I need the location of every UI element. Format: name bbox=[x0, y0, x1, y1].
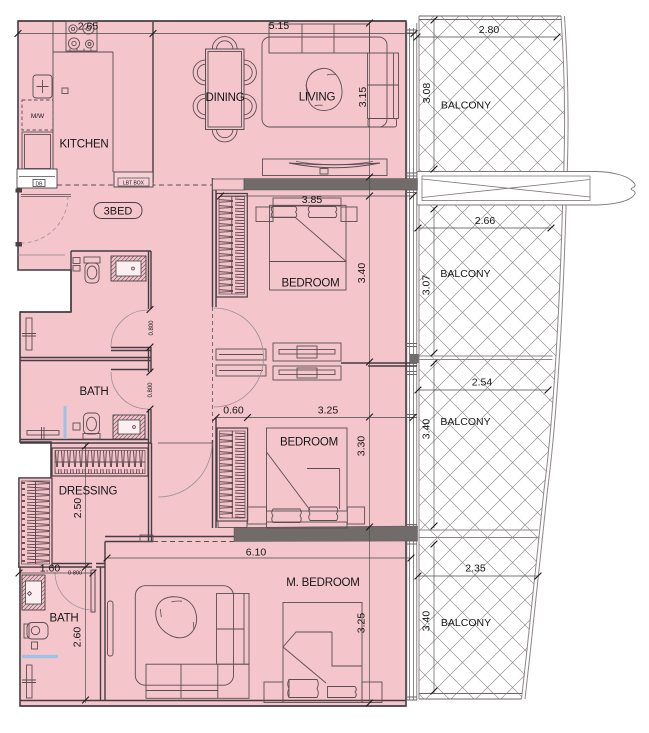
svg-text:2.35: 2.35 bbox=[465, 563, 486, 575]
svg-text:3.25: 3.25 bbox=[318, 405, 339, 417]
svg-text:3.85: 3.85 bbox=[302, 194, 323, 206]
svg-text:3.25: 3.25 bbox=[356, 613, 368, 634]
svg-text:BALCONY: BALCONY bbox=[441, 100, 491, 112]
svg-text:2.54: 2.54 bbox=[472, 377, 493, 389]
svg-text:2.65: 2.65 bbox=[78, 21, 99, 33]
svg-text:0·800: 0·800 bbox=[68, 571, 82, 577]
svg-text:3.08: 3.08 bbox=[421, 83, 433, 104]
svg-text:2.60: 2.60 bbox=[72, 627, 84, 648]
svg-text:LIVING: LIVING bbox=[299, 92, 336, 104]
svg-text:BATH: BATH bbox=[49, 613, 78, 625]
svg-text:KITCHEN: KITCHEN bbox=[59, 139, 108, 151]
svg-text:M/W: M/W bbox=[31, 113, 45, 120]
svg-text:3.07: 3.07 bbox=[421, 275, 433, 296]
svg-text:BEDROOM: BEDROOM bbox=[280, 437, 338, 449]
svg-text:DB: DB bbox=[36, 182, 44, 188]
svg-text:0.800: 0.800 bbox=[148, 382, 154, 398]
svg-text:LBT BOX: LBT BOX bbox=[123, 181, 145, 187]
svg-text:M. BEDROOM: M. BEDROOM bbox=[286, 577, 359, 589]
svg-text:6.10: 6.10 bbox=[246, 547, 267, 559]
svg-text:3.40: 3.40 bbox=[356, 263, 368, 284]
svg-text:BALCONY: BALCONY bbox=[441, 617, 491, 629]
svg-text:5.15: 5.15 bbox=[269, 20, 290, 32]
svg-text:BALCONY: BALCONY bbox=[440, 268, 490, 280]
svg-text:2.80: 2.80 bbox=[479, 24, 500, 36]
svg-text:1.60: 1.60 bbox=[40, 563, 61, 575]
svg-text:BEDROOM: BEDROOM bbox=[281, 278, 339, 290]
svg-text:3BED: 3BED bbox=[104, 206, 133, 218]
svg-text:0.60: 0.60 bbox=[223, 405, 244, 417]
svg-text:3.30: 3.30 bbox=[356, 436, 368, 457]
svg-text:0.800: 0.800 bbox=[149, 320, 155, 336]
svg-text:2.66: 2.66 bbox=[475, 215, 496, 227]
svg-text:BATH: BATH bbox=[79, 386, 108, 398]
svg-text:3.40: 3.40 bbox=[421, 419, 433, 440]
svg-text:3.40: 3.40 bbox=[421, 611, 433, 632]
svg-text:3.15: 3.15 bbox=[357, 87, 369, 108]
svg-text:2.50: 2.50 bbox=[72, 498, 84, 519]
svg-text:DINING: DINING bbox=[205, 92, 244, 104]
svg-text:DRESSING: DRESSING bbox=[59, 486, 118, 498]
svg-text:BALCONY: BALCONY bbox=[440, 416, 490, 428]
